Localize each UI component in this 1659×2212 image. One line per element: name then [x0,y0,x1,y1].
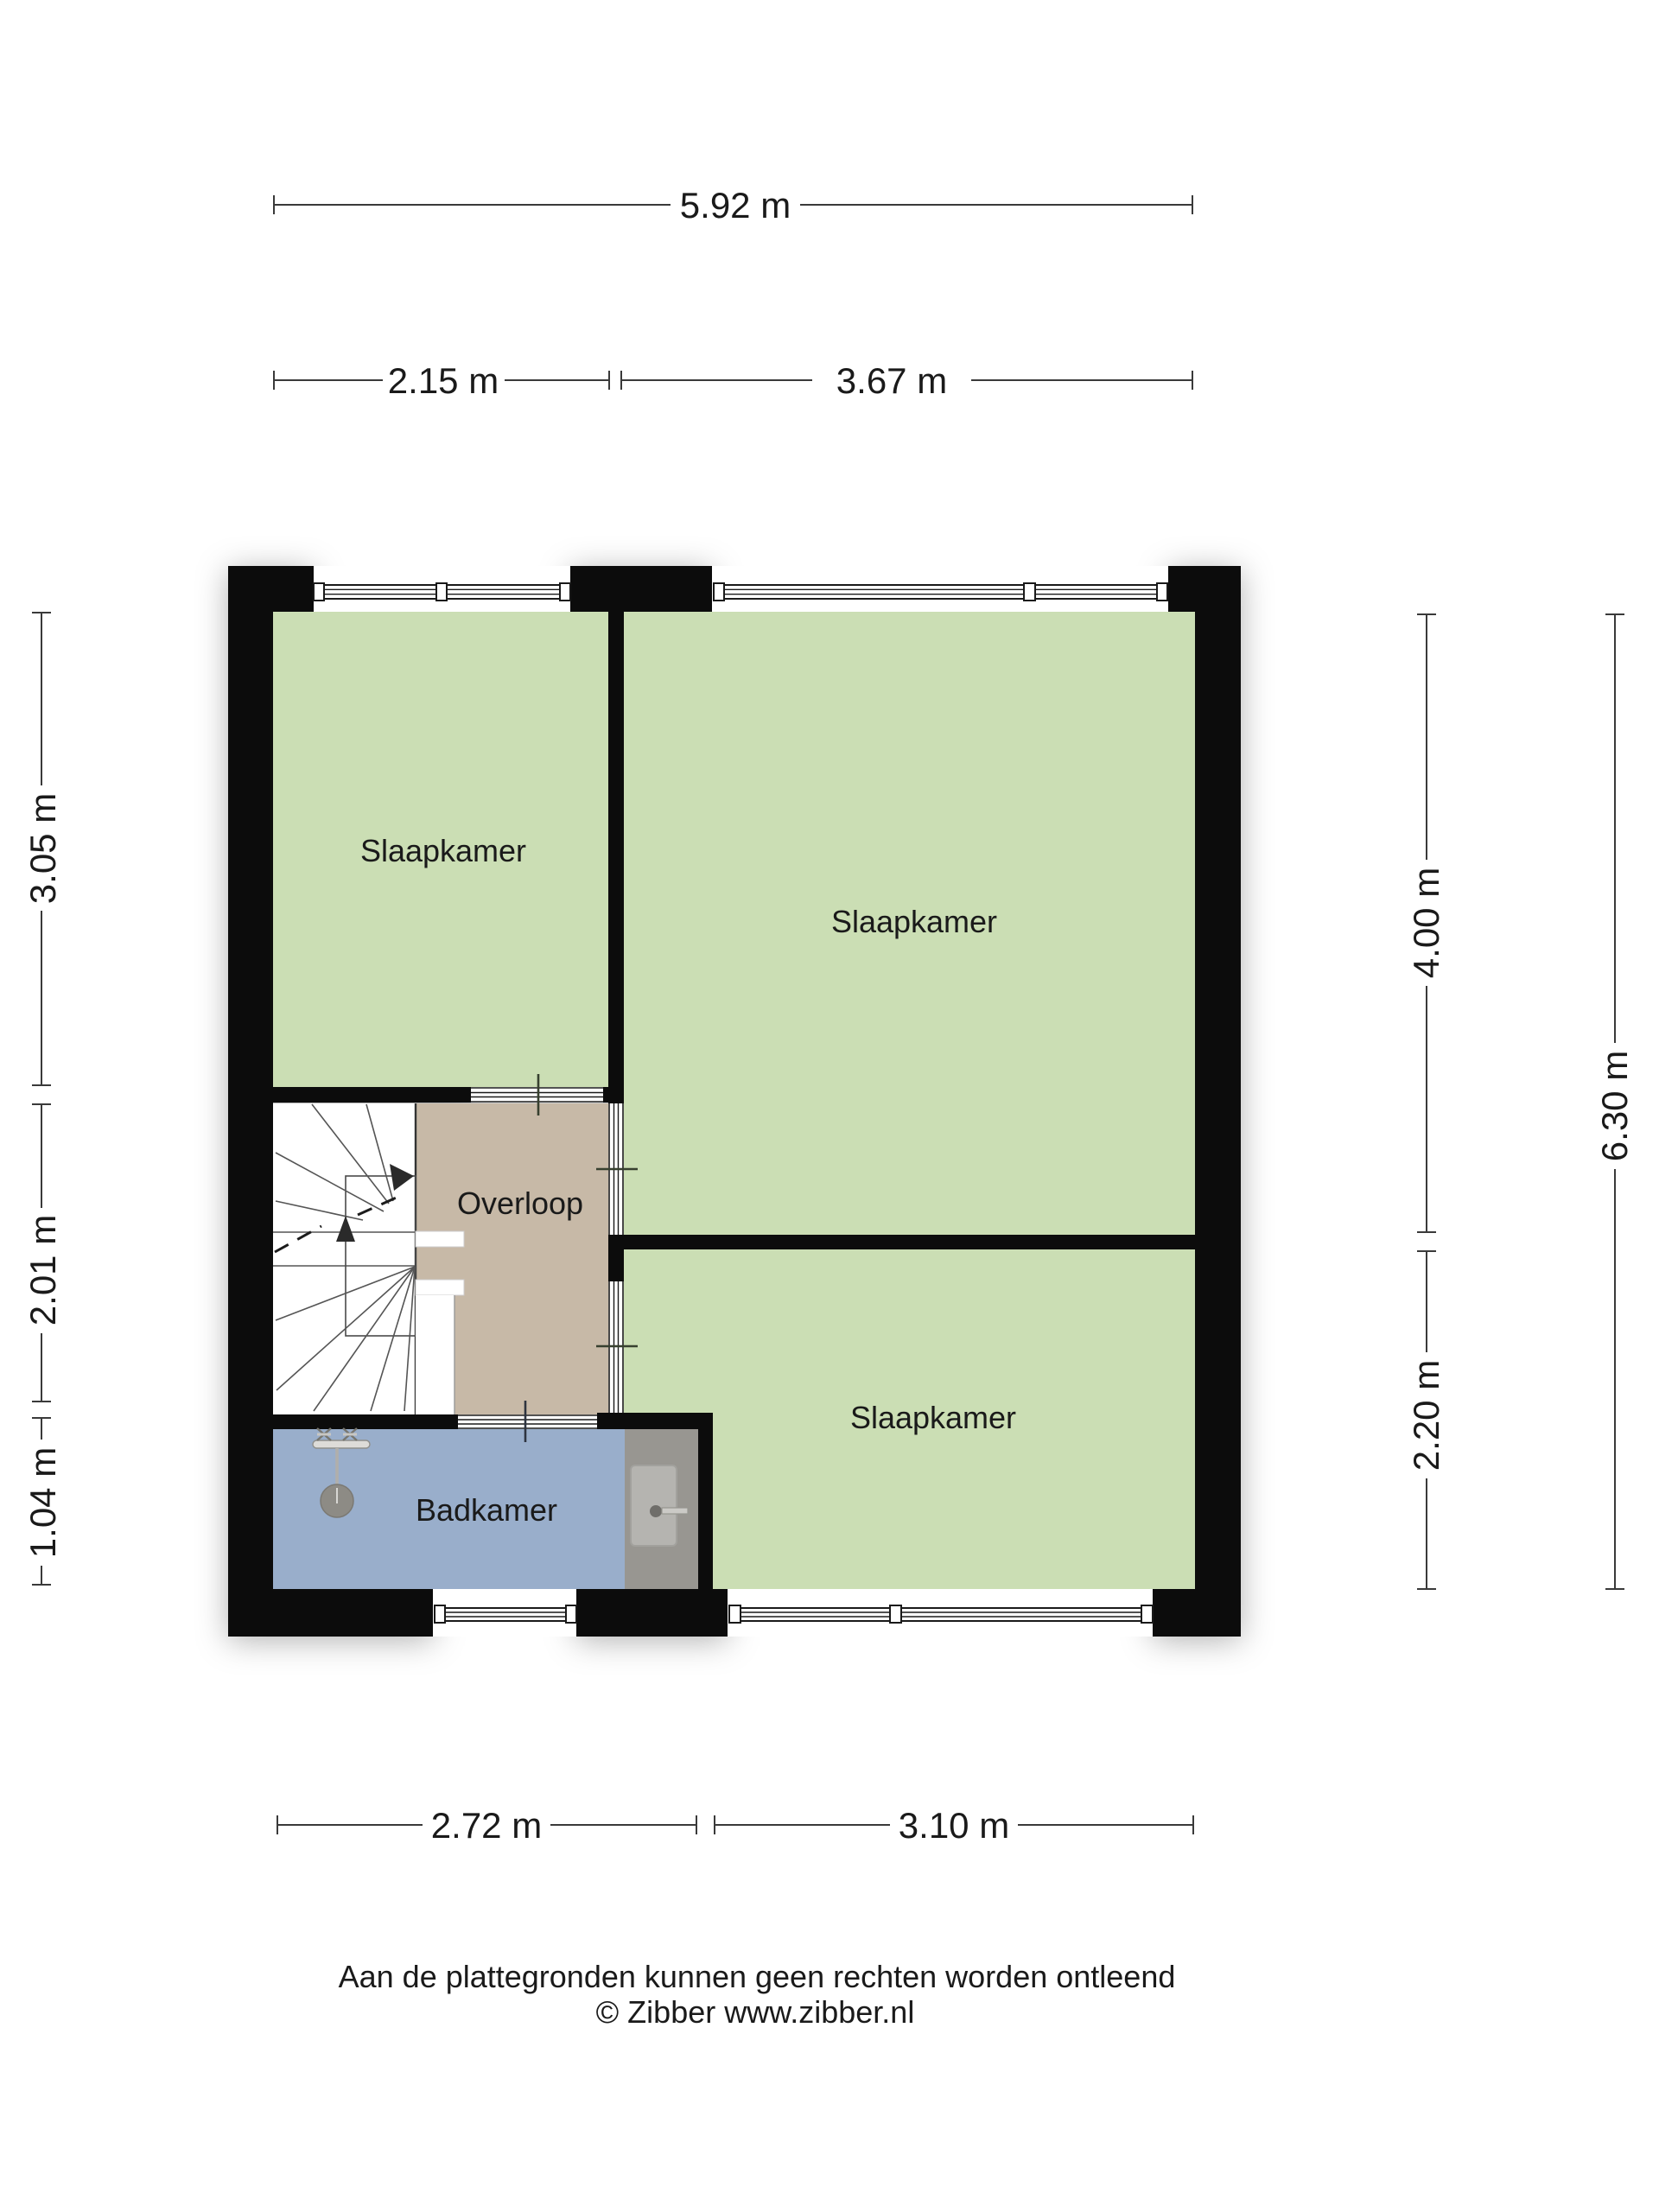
svg-text:3.10 m: 3.10 m [899,1805,1009,1846]
svg-text:Slaapkamer: Slaapkamer [850,1400,1016,1435]
svg-text:Badkamer: Badkamer [416,1492,557,1528]
svg-text:6.30 m: 6.30 m [1594,1051,1635,1161]
svg-text:1.04 m: 1.04 m [22,1447,63,1558]
svg-text:4.00 m: 4.00 m [1406,868,1446,978]
svg-text:Slaapkamer: Slaapkamer [831,904,997,939]
svg-text:Aan de plattegronden kunnen ge: Aan de plattegronden kunnen geen rechten… [339,1959,1176,1994]
svg-text:2.15 m: 2.15 m [388,360,499,401]
svg-text:Slaapkamer: Slaapkamer [360,833,526,868]
svg-text:2.20 m: 2.20 m [1406,1360,1446,1471]
svg-text:2.01 m: 2.01 m [22,1215,63,1325]
svg-text:3.05 m: 3.05 m [22,793,63,904]
svg-text:© Zibber www.zibber.nl: © Zibber www.zibber.nl [596,1994,915,2030]
svg-text:3.67 m: 3.67 m [836,360,947,401]
svg-text:2.72 m: 2.72 m [431,1805,542,1846]
svg-text:Overloop: Overloop [457,1185,583,1221]
svg-text:5.92 m: 5.92 m [680,185,791,226]
